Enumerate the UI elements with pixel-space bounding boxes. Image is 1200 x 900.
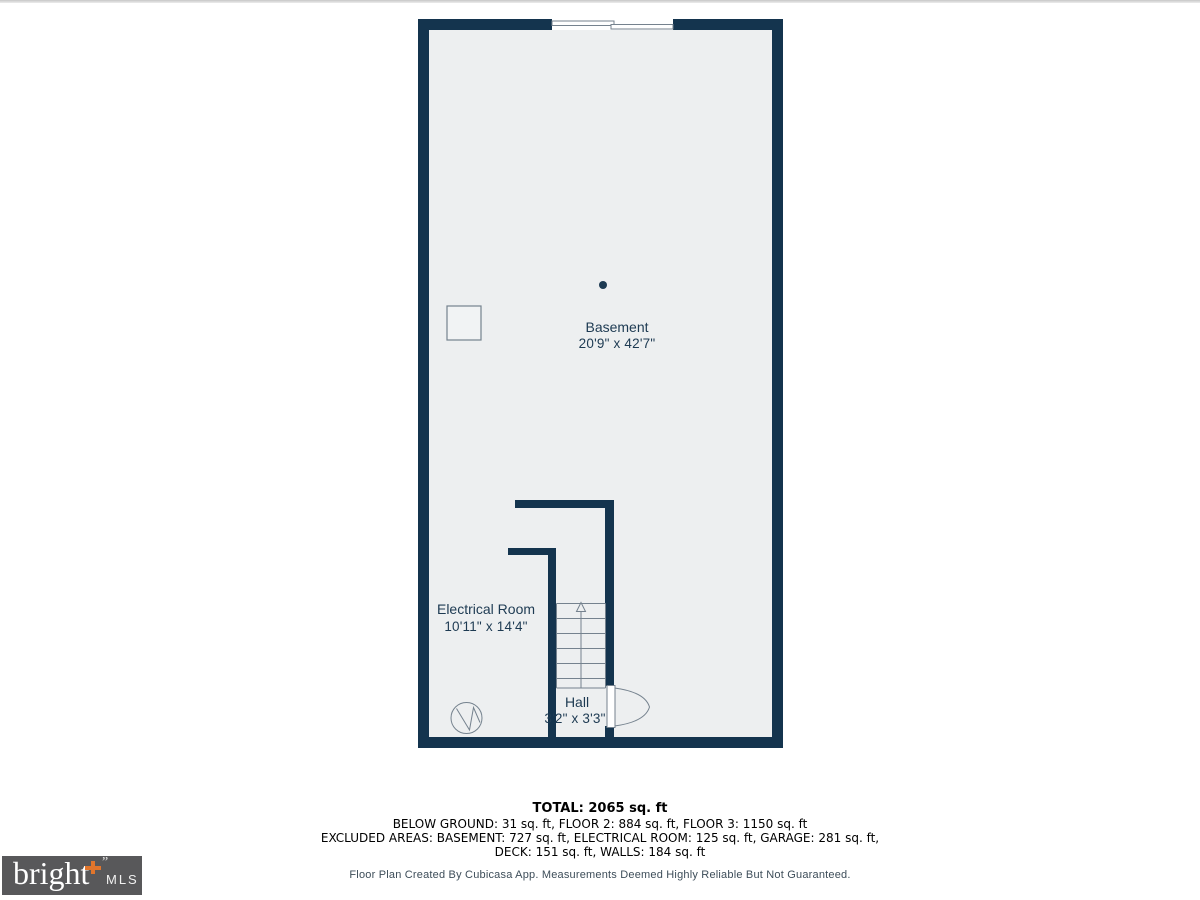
basement-room-dimensions: 20'9" x 42'7" (579, 336, 656, 351)
point-marker-icon (599, 281, 607, 289)
excluded-areas-text: EXCLUDED AREAS: BASEMENT: 727 sq. ft, EL… (0, 831, 1200, 845)
wall-hall-top (515, 500, 614, 508)
electrical-room-dimensions: 10'11" x 14'4" (444, 619, 527, 634)
column-icon (447, 306, 481, 340)
electrical-room-label: Electrical Room (437, 602, 535, 617)
bright-wordmark: bright (13, 853, 89, 893)
floor-areas-text: BELOW GROUND: 31 sq. ft, FLOOR 2: 884 sq… (0, 817, 1200, 831)
floor-plan-page: Basement 20'9" x 42'7" Electrical Room 1… (0, 0, 1200, 900)
sliding-window-icon (552, 19, 673, 30)
disclaimer-text: Floor Plan Created By Cubicasa App. Meas… (0, 869, 1200, 881)
basement-room-label: Basement (585, 320, 648, 335)
wall-stairs-right-upper (605, 500, 614, 686)
wall-electrical-right (548, 548, 556, 738)
mls-wordmark: MLS (106, 872, 139, 887)
total-area-text: TOTAL: 2065 sq. ft (0, 801, 1200, 816)
bright-mls-logo: bright ” MLS (2, 856, 142, 895)
trademark-ticks: ” (102, 855, 108, 871)
hall-room-label: Hall (565, 695, 589, 710)
hall-room-dimensions: 3'2" x 3'3" (544, 711, 605, 726)
excluded-areas-text-2: DECK: 151 sq. ft, WALLS: 184 sq. ft (0, 845, 1200, 859)
floor-plan-drawing (0, 0, 1200, 900)
orange-cross-icon (85, 861, 101, 876)
